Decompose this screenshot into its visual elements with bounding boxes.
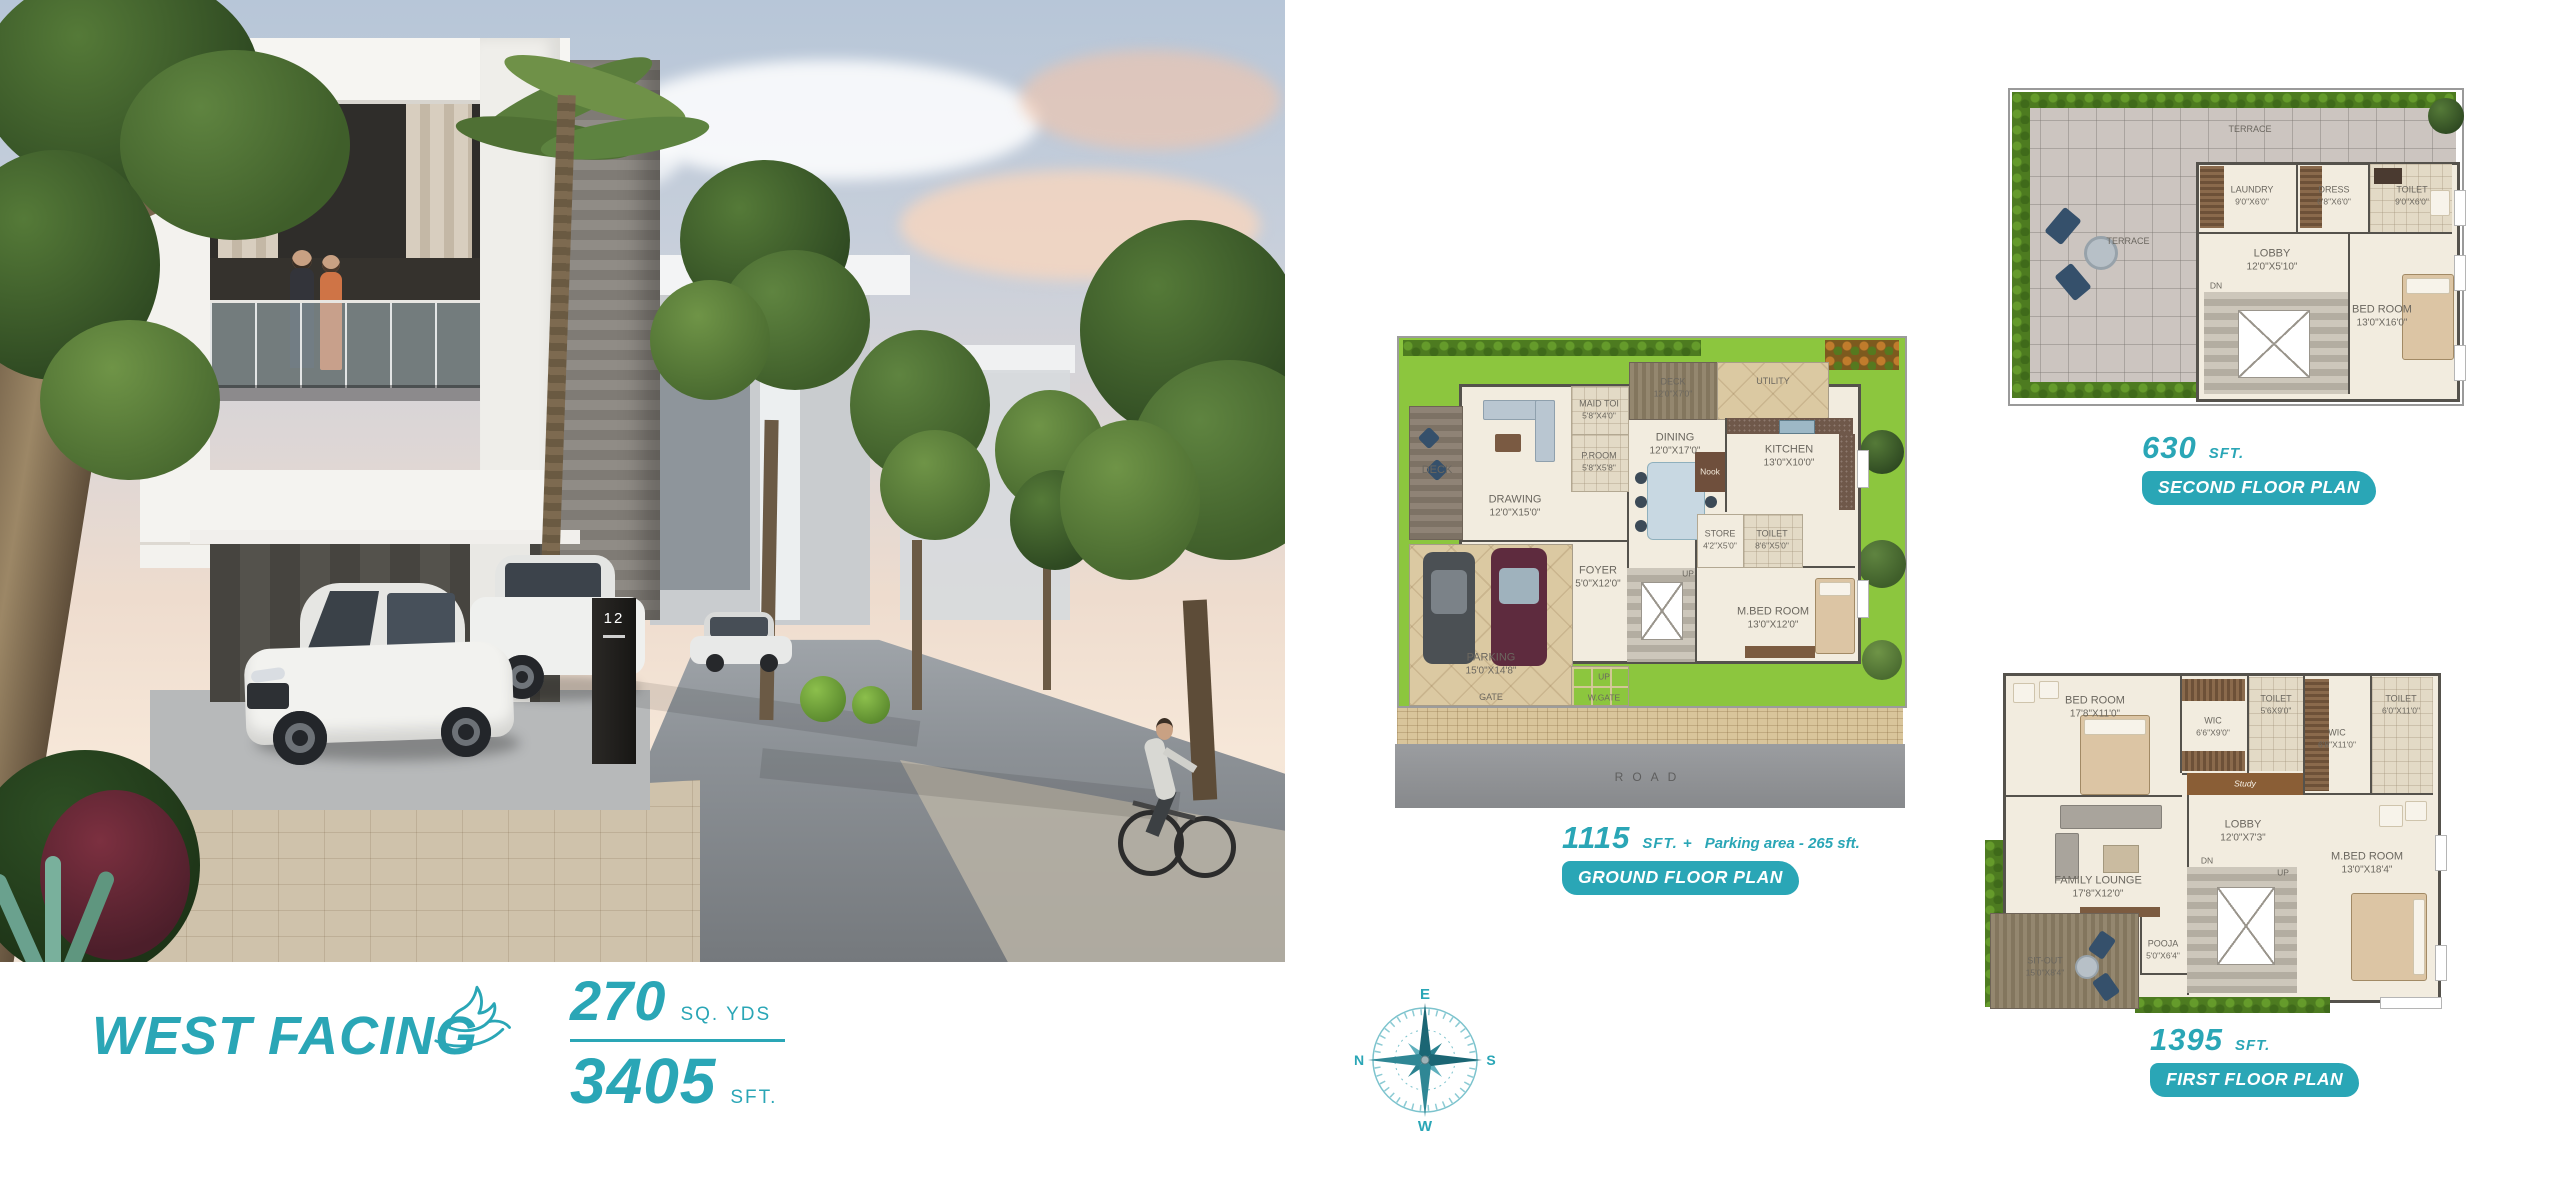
terrace-hedge-top <box>2012 92 2456 108</box>
car-parked <box>690 612 795 670</box>
car-roof-glass <box>1499 568 1539 604</box>
first-floor-caption: 1395 SFT. FIRST FLOOR PLAN <box>2150 1022 2359 1097</box>
room-label-study: Study <box>2234 778 2256 789</box>
coffee-table <box>1495 434 1521 452</box>
room-label-utility: UTILITY <box>1756 376 1790 388</box>
parked-car-maroon <box>1491 548 1547 666</box>
agave-leaf <box>60 869 117 962</box>
room-label-p-room: P.ROOM5'8"X5'8" <box>1581 451 1616 474</box>
window-sill <box>2454 190 2466 226</box>
gate-pillar: 12 <box>592 598 636 764</box>
topiary-bush <box>800 676 846 722</box>
wardrobe <box>2379 805 2403 827</box>
ground-area-value: 1115 <box>1562 820 1630 856</box>
sft-unit: SFT. <box>730 1087 777 1109</box>
pillow <box>1819 582 1851 596</box>
compass-east-label: E <box>1420 986 1430 1003</box>
ground-floor-caption: 1115 SFT. + Parking area - 265 sft. GROU… <box>1562 820 1860 895</box>
room-label-deck-side: DECK <box>1422 463 1453 477</box>
stair-landing <box>2238 310 2310 378</box>
room-label-maid-toi: MAID TOI5'8"X4'0" <box>1579 399 1619 422</box>
wall <box>2303 793 2433 795</box>
room-label-toilet-a: TOILET5'6X9'0" <box>2260 694 2291 717</box>
wall <box>2348 234 2350 394</box>
room-label-gate: GATE <box>1479 692 1503 704</box>
compass-rose: E S W N <box>1350 985 1500 1135</box>
second-floor-badge: SECOND FLOOR PLAN <box>2142 471 2376 505</box>
wic-closet <box>2182 679 2245 701</box>
cyclist-head <box>1156 718 1173 740</box>
dresser <box>1745 646 1815 658</box>
wardrobe <box>2405 801 2427 821</box>
room-label-sit-out: SIT-OUT15'0"X8'4" <box>2026 956 2065 979</box>
room-label-up: UP <box>1682 568 1694 579</box>
dining-chair <box>1705 496 1717 508</box>
room-label-foyer: FOYER5'0"X12'0" <box>1575 563 1620 590</box>
sit-out-deck <box>1990 913 2139 1009</box>
second-floor-plan: TERRACE TERRACE LAUNDRY9'0"X6'0" DRESS6'… <box>2000 70 2470 420</box>
stats-divider <box>570 1039 785 1042</box>
window-sill <box>1857 450 1869 488</box>
planter-bottom <box>2135 997 2330 1013</box>
sofa <box>1535 400 1555 462</box>
window-sill <box>1857 580 1869 618</box>
balcony-shadow <box>210 385 480 401</box>
plan-footpath <box>1397 704 1903 744</box>
room-label-wic-a: WIC6'6"X9'0" <box>2196 716 2230 739</box>
pillow <box>2084 719 2146 735</box>
house-number: 12 <box>592 610 636 627</box>
ground-floor-badge: GROUND FLOOR PLAN <box>1562 861 1799 895</box>
tree-foliage <box>40 320 220 480</box>
stair-landing <box>1641 582 1683 640</box>
tree-trunk <box>1043 560 1051 690</box>
tree-foliage <box>1060 420 1200 580</box>
car-roof-glass <box>1431 570 1467 614</box>
second-area-row: 630 SFT. <box>2142 430 2376 466</box>
dining-chair <box>1635 520 1647 532</box>
room-label-pooja: POOJA5'0"X6'4" <box>2146 939 2180 962</box>
dining-chair <box>1635 472 1647 484</box>
ground-area-row: 1115 SFT. + Parking area - 265 sft. <box>1562 820 1860 856</box>
terrace-tree <box>2428 98 2464 134</box>
kitchen-counter <box>1839 434 1855 510</box>
first-floor-plan: BED ROOM17'8"X11'0" WIC6'6"X9'0" TOILET5… <box>1985 655 2460 1020</box>
second-area-unit: SFT. <box>2209 445 2244 462</box>
cyclist-torso <box>1143 737 1177 802</box>
car-sedan <box>245 575 535 780</box>
brochure-page: 12 <box>0 0 2560 1178</box>
sq-yds-unit: SQ. YDS <box>680 1004 771 1026</box>
room-label-lobby: LOBBY12'0"X5'10" <box>2247 246 2298 273</box>
topiary-bush <box>852 686 890 724</box>
room-label-dining: DINING12'0"X17'0" <box>1650 430 1701 457</box>
car-wheel <box>273 711 327 765</box>
sq-yds-row: 270 SQ. YDS <box>570 968 785 1033</box>
car-wheel <box>706 654 724 672</box>
stair-landing <box>2217 887 2275 965</box>
bicycle-wheel <box>1174 816 1236 878</box>
first-area-row: 1395 SFT. <box>2150 1022 2359 1058</box>
ground-area-unit: SFT. + <box>1642 835 1692 852</box>
cyclist <box>1110 680 1225 885</box>
road-label: ROAD <box>1615 770 1686 786</box>
room-label-up: UP <box>2277 867 2289 878</box>
wall <box>2198 232 2452 234</box>
car-wheel <box>760 654 778 672</box>
ground-floor-plan: DECK DRAWING12'0"X15'0" MAID TOI5'8"X4'0… <box>1395 330 1905 808</box>
lounge-table <box>2103 845 2139 873</box>
wall <box>2140 913 2142 975</box>
terrace-hedge-left <box>2012 92 2030 398</box>
room-label-bed-room: BED ROOM13'0"X16'0" <box>2352 302 2412 329</box>
room-label-deck-top: DECK12'0"X7'0" <box>1654 377 1693 400</box>
room-label-m-bed: M.BED ROOM13'0"X12'0" <box>1737 604 1809 631</box>
person-woman-head <box>322 255 340 273</box>
wall <box>2005 795 2182 797</box>
room-label-dn: DN <box>2210 280 2222 291</box>
first-area-value: 1395 <box>2150 1022 2223 1058</box>
car-window <box>387 593 455 649</box>
room-label-lobby: LOBBY12'0"X7'3" <box>2220 817 2265 844</box>
room-label-wic-b: WIC6'8"X11'0" <box>2318 728 2356 751</box>
compass-south-label: S <box>1486 1052 1495 1068</box>
wc <box>2430 190 2450 216</box>
page-title: WEST FACING <box>92 1005 478 1067</box>
tree-foliage <box>650 280 770 400</box>
room-label-toilet-b: TOILET6'0"X11'0" <box>2382 694 2420 717</box>
room-label-w-gate: W.GATE <box>1588 692 1620 703</box>
utility-zone <box>1717 362 1829 420</box>
agave-leaf <box>0 872 48 962</box>
room-label-family-lounge: FAMILY LOUNGE17'8"X12'0" <box>2054 873 2142 900</box>
cloud <box>1020 50 1280 150</box>
ground-area-extra: Parking area - 265 sft. <box>1705 835 1860 852</box>
hedge-row <box>1403 340 1701 356</box>
window-sill <box>2454 345 2466 381</box>
car-wheel <box>441 707 491 757</box>
vanity <box>2374 168 2402 184</box>
room-label-drawing: DRAWING12'0"X15'0" <box>1489 492 1542 519</box>
window-sill <box>2454 255 2466 291</box>
room-label-laundry: LAUNDRY9'0"X6'0" <box>2231 185 2274 208</box>
flower-hedge <box>1825 340 1899 370</box>
wall <box>1461 540 1627 542</box>
window-sill <box>2435 835 2447 871</box>
tree-trunk <box>912 540 922 710</box>
room-label-dress: DRESS6'8"X6'0" <box>2317 185 2351 208</box>
dining-chair <box>1635 496 1647 508</box>
laundry-closet <box>2200 166 2224 228</box>
mailbox-slot <box>603 635 625 638</box>
room-label-toilet: TOILET8'6"X5'0" <box>1755 529 1789 552</box>
agave-leaf <box>45 856 61 962</box>
room-label-dn: DN <box>2201 855 2213 866</box>
bath-fixture <box>2039 681 2059 699</box>
agave-plant <box>0 850 150 962</box>
car-windows <box>710 617 768 637</box>
area-stats: 270 SQ. YDS 3405 SFT. <box>570 968 785 1118</box>
car-grille <box>247 683 289 709</box>
sofa <box>2055 833 2079 879</box>
room-label-terrace-top: TERRACE <box>2228 124 2271 136</box>
terrace-hedge-bottom <box>2012 382 2202 398</box>
sofa <box>2060 805 2162 829</box>
sft-value: 3405 <box>570 1044 716 1118</box>
second-area-value: 630 <box>2142 430 2197 466</box>
balcony-sill <box>2380 997 2442 1009</box>
balcony-glass <box>210 300 480 388</box>
room-label-kitchen: KITCHEN13'0"X10'0" <box>1764 442 1815 469</box>
entry-canopy <box>190 530 580 544</box>
room-label-parking: PARKING15'0"X14'8" <box>1466 650 1517 677</box>
room-label-nook: Nook <box>1700 466 1720 477</box>
first-floor-badge: FIRST FLOOR PLAN <box>2150 1063 2359 1097</box>
room-label-up-gate: UP <box>1598 671 1610 682</box>
wall <box>2296 164 2298 234</box>
sft-row: 3405 SFT. <box>570 1044 785 1118</box>
compass-west-label: W <box>1418 1118 1433 1135</box>
deck-table <box>2075 955 2099 979</box>
room-label-terrace-side: TERRACE <box>2106 236 2149 248</box>
tree-foliage <box>120 50 350 240</box>
room-label-m-bed: M.BED ROOM13'0"X18'4" <box>2331 849 2403 876</box>
room-label-bed-room: BED ROOM17'8"X11'0" <box>2065 693 2125 720</box>
dove-logo-icon <box>428 972 524 1060</box>
garden-tree <box>1862 640 1902 680</box>
tree-foliage <box>880 430 990 540</box>
second-floor-caption: 630 SFT. SECOND FLOOR PLAN <box>2142 430 2376 505</box>
stove <box>1779 420 1815 434</box>
villa-photo: 12 <box>0 0 1285 962</box>
first-area-unit: SFT. <box>2235 1037 2270 1054</box>
pillow <box>2406 278 2450 294</box>
room-label-store: STORE4'2"X5'0" <box>1703 529 1737 552</box>
wall <box>2140 973 2189 975</box>
wic-closet <box>2182 751 2245 771</box>
room-label-toilet: TOILET9'0"X6'0" <box>2395 185 2429 208</box>
compass-north-label: N <box>1354 1052 1364 1068</box>
window-sill <box>2435 945 2447 981</box>
sq-yds-value: 270 <box>570 968 666 1033</box>
bath-fixture <box>2013 683 2035 703</box>
toilet-zone <box>2249 677 2303 771</box>
person-man-head <box>292 250 312 270</box>
pillow <box>2413 899 2425 975</box>
